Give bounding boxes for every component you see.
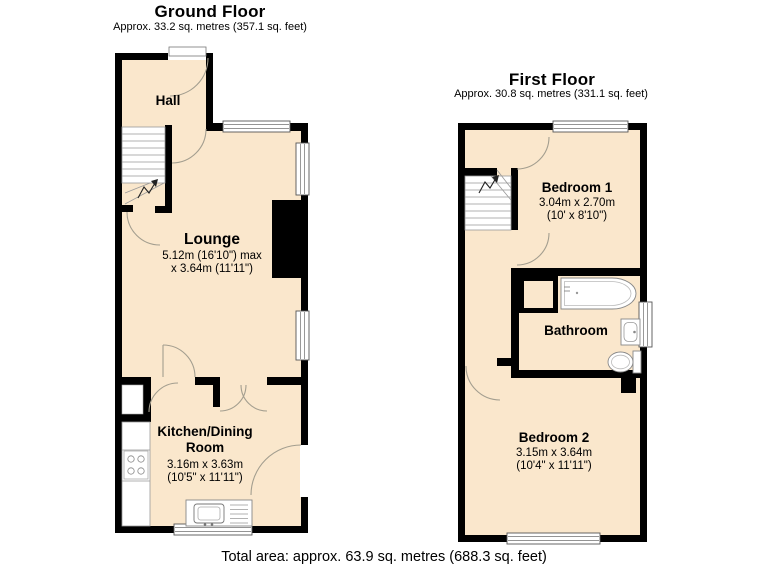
- window: [553, 121, 628, 132]
- chimney-breast: [272, 200, 308, 278]
- room-label-bedroom1: Bedroom 1: [542, 180, 613, 195]
- window: [507, 533, 600, 544]
- first-floor-title: First Floor: [509, 70, 595, 90]
- toilet: [608, 351, 641, 373]
- back-door-opening: [300, 445, 309, 497]
- floorplan-page: Ground Floor Approx. 33.2 sq. metres (35…: [0, 0, 768, 576]
- first-floor-subtitle: Approx. 30.8 sq. metres (331.1 sq. feet): [454, 88, 648, 100]
- window: [223, 121, 290, 132]
- bedroom1-dimensions-2: (10' x 8'10"): [547, 210, 607, 222]
- bedroom2-dimensions-2: (10'4" x 11'11"): [516, 460, 591, 472]
- ground-floor-subtitle: Approx. 33.2 sq. metres (357.1 sq. feet): [113, 21, 307, 33]
- room-label-hall: Hall: [156, 93, 181, 108]
- bedroom2-dimensions-1: 3.15m x 3.64m: [516, 447, 592, 459]
- room-label-lounge: Lounge: [184, 231, 240, 249]
- floorplan-drawing: [0, 0, 768, 576]
- staircase-first: [465, 170, 511, 230]
- ground-floor-title: Ground Floor: [155, 2, 266, 22]
- kitchen-sink: [186, 500, 252, 526]
- lounge-dimensions-1: 5.12m (16'10") max: [162, 250, 262, 262]
- window: [296, 311, 309, 360]
- bathtub: [561, 278, 636, 309]
- under-stairs-cupboard: [122, 385, 143, 414]
- bedroom1-dimensions-1: 3.04m x 2.70m: [539, 197, 615, 209]
- room-label-bathroom: Bathroom: [544, 323, 608, 338]
- window: [639, 302, 652, 347]
- kitchen-dimensions-1: 3.16m x 3.63m: [167, 459, 243, 471]
- room-label-kitchen: Kitchen/Dining Room: [139, 424, 271, 456]
- total-area-text: Total area: approx. 63.9 sq. metres (688…: [221, 549, 547, 565]
- airing-cupboard-interior: [524, 281, 553, 308]
- window: [296, 143, 309, 195]
- kitchen-dimensions-2: (10'5" x 11'11"): [167, 472, 242, 484]
- lounge-dimensions-2: x 3.64m (11'11"): [171, 263, 253, 275]
- wash-basin: [621, 319, 640, 345]
- room-label-bedroom2: Bedroom 2: [519, 430, 590, 445]
- chimney-stub: [621, 378, 636, 393]
- front-door-leaf: [169, 47, 206, 56]
